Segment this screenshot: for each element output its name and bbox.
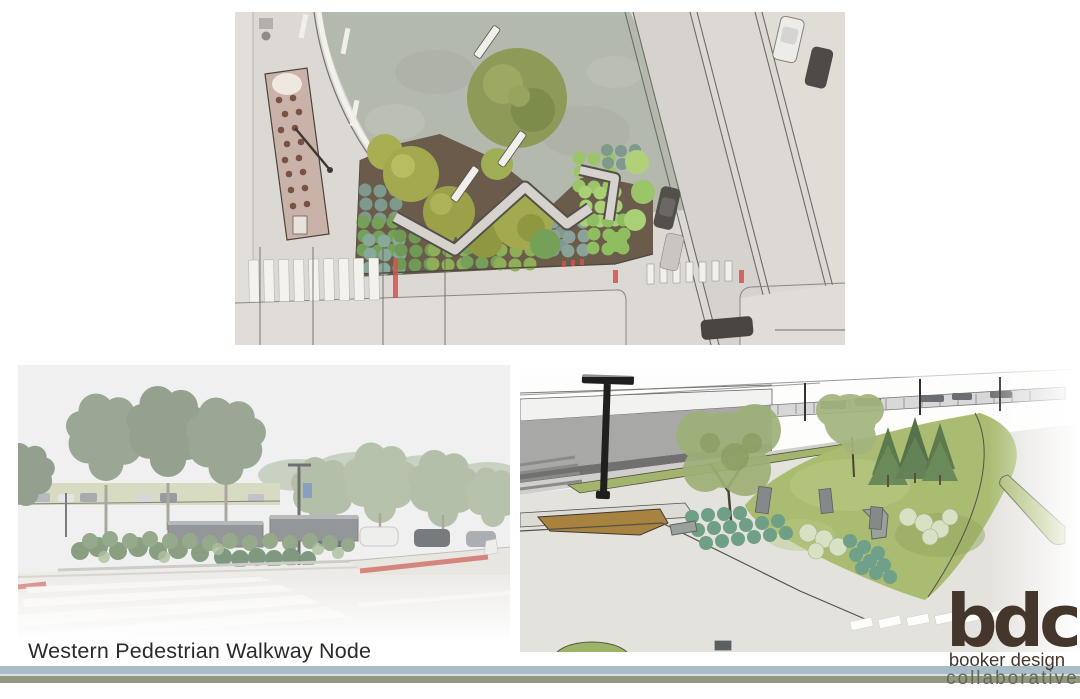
bdc-logo-subname: collaborative xyxy=(946,669,1068,689)
bdc-logo: bdc booker design collaborative xyxy=(946,593,1068,689)
page-title: Western Pedestrian Walkway Node xyxy=(28,639,371,663)
crosswalk xyxy=(249,258,380,302)
footer-bar-olive xyxy=(0,676,1080,683)
site-plan-drawing xyxy=(235,12,845,345)
streetscape-drawing xyxy=(18,365,510,642)
site-plan-aerial-view xyxy=(235,12,845,345)
presentation-slide: Western Pedestrian Walkway Node bdc book… xyxy=(0,0,1080,699)
bottom-fade xyxy=(18,575,510,642)
bdc-logo-acronym: bdc xyxy=(946,593,1068,649)
streetscape-photo-rendering xyxy=(18,365,510,642)
bdc-logo-name: booker design xyxy=(946,650,1068,669)
existing-tree xyxy=(467,48,567,148)
parking-stall-markings xyxy=(647,261,732,284)
top-fade xyxy=(520,365,1080,377)
footer-bar-blue xyxy=(0,666,1080,674)
